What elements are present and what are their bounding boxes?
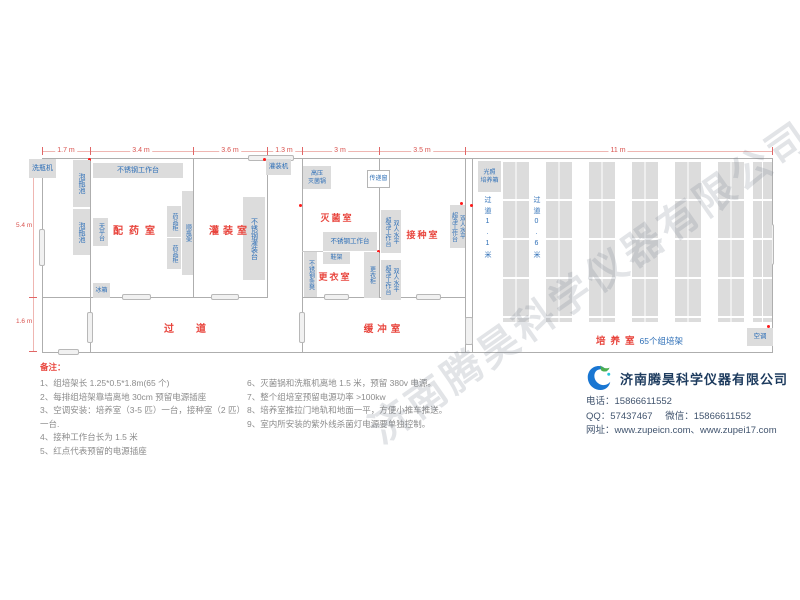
dim-label: 1.7 m (55, 147, 77, 155)
dim-label: 3.6 m (219, 147, 241, 155)
equipment-label: 洗瓶机 (32, 164, 53, 173)
wall (90, 158, 91, 313)
company-logo-icon (584, 363, 614, 393)
room-label-buffer: 缓冲室 (353, 321, 415, 335)
equipment-workbench: 不锈钢工作台 (93, 163, 183, 178)
wall (42, 158, 772, 159)
equipment-clean-bench: 双人水平超净工作台 (450, 205, 465, 248)
equipment-clean-bench: 双人水平超净工作台 (381, 260, 401, 300)
dim-tick (29, 351, 37, 352)
equipment-label: 泡瓶池 (77, 173, 86, 194)
equipment-filling-table: 不锈钢灌装台 (243, 197, 265, 280)
notes-item: 5、红点代表预留的电源插座 (40, 445, 245, 459)
equipment-label: 双人水平超净工作台 (450, 212, 465, 242)
equipment-light-incubator: 光照培养箱 (478, 161, 501, 192)
entrance-door (58, 349, 79, 355)
equipment-filling-machine: 灌装机 (266, 159, 291, 175)
wall (193, 158, 194, 298)
equipment-shoe-rack: 鞋架 (323, 252, 350, 264)
notes-item: 3、空调安装：培养室（3-5 匹）一台，接种室（2 匹）一台. (40, 404, 245, 431)
dim-label: 11 m (608, 147, 627, 155)
dim-tick (90, 147, 91, 155)
equipment-label: 双人水平超净工作台 (383, 265, 399, 295)
window (39, 229, 45, 266)
wall (465, 158, 466, 318)
equipment-label: 高压灭菌锅 (308, 170, 326, 186)
dim-tick (379, 147, 380, 155)
company-qq-line: QQ：57437467 微信：15866611552 (586, 408, 751, 422)
wall (302, 343, 303, 353)
equipment-soak-pool: 泡瓶池 (73, 209, 90, 255)
wall (472, 158, 473, 318)
room-label-preparation: 配药室 (102, 222, 172, 237)
dim-line-left (33, 160, 34, 352)
door (416, 294, 441, 300)
wall (150, 297, 212, 298)
dim-label: 3.4 m (130, 147, 152, 155)
power-outlet-dot (299, 204, 302, 207)
wall (42, 297, 123, 298)
power-outlet-dot (470, 204, 473, 207)
room-label-culture-text: 培养室 (596, 336, 640, 347)
equipment-label: 不锈钢工作台 (117, 166, 159, 175)
dim-label: 5.4 m (16, 222, 32, 230)
equipment-label: 灌装机 (269, 163, 289, 171)
aisle-label-wide: 过道1.1米 (482, 196, 492, 276)
company-name: 济南腾昊科学仪器有限公司 (620, 369, 788, 388)
web-label: 网址： (586, 425, 615, 436)
notes-item: 6、灭菌锅和洗瓶机离地 1.5 米，预留 380v 电源。 (247, 377, 487, 391)
equipment-label: 双人水平超净工作台 (383, 217, 399, 247)
room-label-corridor: 过道 (140, 320, 230, 335)
wall (302, 297, 325, 298)
room-label-inoculation: 接种室 (398, 228, 448, 241)
wall (90, 343, 91, 353)
culture-rack-bar (632, 162, 658, 322)
notes-item: 2、每排组培架靠墙离地 30cm 预留电源插座 (40, 391, 245, 405)
culture-rack-count: 65个组培架 (640, 336, 683, 346)
floor-plan-page: 济南腾昊科学仪器有限公司 1.7 m 3.4 m 3.6 m 1.3 m 3 m… (0, 0, 800, 600)
wall (238, 297, 267, 298)
equipment-fridge: 冰箱 (93, 283, 110, 298)
notes-item: 4、接种工作台长为 1.5 米 (40, 431, 245, 445)
dim-tick (302, 147, 303, 155)
company-web-line: 网址：www.zupeicn.com、www.zupei17.com (586, 422, 777, 436)
notes-title: 备注： (40, 361, 585, 375)
room-label-filling: 灌装室 (197, 222, 263, 237)
equipment-bottle-rack: 顺瓶架 (182, 191, 193, 275)
equipment-workbench: 不锈钢工作台 (323, 232, 377, 251)
equipment-label: 顺瓶架 (184, 224, 192, 242)
dim-tick (42, 147, 43, 155)
equipment-autoclave: 高压灭菌锅 (303, 166, 331, 189)
notes-right-column: 6、灭菌锅和洗瓶机离地 1.5 米，预留 380v 电源。 7、整个组培室预留电… (247, 377, 487, 431)
dim-tick (772, 147, 773, 155)
swirl-logo-icon (584, 363, 614, 393)
wall (42, 352, 773, 353)
culture-rack-bar (546, 162, 572, 322)
equipment-label: 不锈钢工作台 (331, 238, 370, 246)
equipment-label: 光照培养箱 (480, 169, 498, 185)
wechat-value: 15866611552 (694, 411, 751, 422)
equipment-pass-window: 传递窗 (367, 170, 390, 188)
phone-label: 电话： (586, 396, 615, 407)
notes-item: 9、室内所安装的紫外线杀菌灯电源要单独控制。 (247, 418, 487, 432)
door (465, 317, 473, 345)
equipment-locker: 更衣柜 (364, 252, 379, 298)
dim-label: 3.5 m (411, 147, 433, 155)
door (87, 312, 93, 343)
wall (440, 297, 465, 298)
equipment-label: 冰箱 (95, 287, 107, 295)
door (211, 294, 239, 300)
room-label-culture: 培养室65个组培架 (596, 331, 683, 349)
notes-item: 8、培养室推拉门地轨和地面一平，方便小推车推送。 (247, 404, 487, 418)
dim-label: 1.3 m (273, 147, 295, 155)
notes-item: 7、整个组培室预留电源功率 >100kw (247, 391, 487, 405)
notes-section: 备注： 1、组培架长 1.25*0.5*1.8m(65 个) 2、每排组培架靠墙… (40, 361, 585, 377)
dim-tick (29, 297, 37, 298)
culture-rack-bar (718, 162, 744, 322)
dim-tick (465, 147, 466, 155)
wall (465, 344, 466, 353)
culture-rack-bar (753, 162, 772, 322)
equipment-label: 药品柜 (170, 245, 178, 263)
door (122, 294, 151, 300)
wall (267, 158, 268, 298)
qq-value: 57437467 (610, 411, 652, 422)
room-label-changing: 更衣室 (311, 270, 359, 283)
equipment-label: 泡瓶池 (77, 222, 86, 243)
door (324, 294, 349, 300)
dim-tick (193, 147, 194, 155)
door (299, 312, 305, 343)
wechat-label: 微信： (665, 411, 694, 422)
company-phone-line: 电话：15866611552 (586, 393, 672, 407)
equipment-label: 传递窗 (369, 175, 387, 183)
qq-label: QQ： (586, 411, 610, 422)
equipment-label: 鞋架 (330, 254, 342, 262)
dim-tick (267, 147, 268, 155)
culture-rack-bar (589, 162, 615, 322)
equipment-label: 空调 (754, 333, 767, 341)
room-label-sterilization: 灭菌室 (313, 211, 361, 224)
web-value: www.zupeicn.com、www.zupei17.com (615, 425, 777, 436)
equipment-medicine-cabinet: 药品柜 (167, 238, 181, 269)
notes-item: 1、组培架长 1.25*0.5*1.8m(65 个) (40, 377, 245, 391)
equipment-air-conditioner: 空调 (747, 328, 773, 346)
equipment-bottle-washer: 洗瓶机 (29, 159, 56, 178)
dim-label: 3 m (332, 147, 348, 155)
notes-left-column: 1、组培架长 1.25*0.5*1.8m(65 个) 2、每排组培架靠墙离地 3… (40, 377, 245, 458)
wall (472, 344, 473, 353)
culture-rack-bar (503, 162, 529, 322)
dim-label: 1.6 m (16, 318, 32, 326)
equipment-label: 更衣柜 (368, 266, 376, 284)
aisle-label-narrow: 过道0.6米 (531, 196, 541, 276)
phone-value: 15866611552 (615, 396, 672, 407)
culture-rack-bar (675, 162, 701, 322)
equipment-soak-pool: 泡瓶池 (73, 160, 90, 207)
